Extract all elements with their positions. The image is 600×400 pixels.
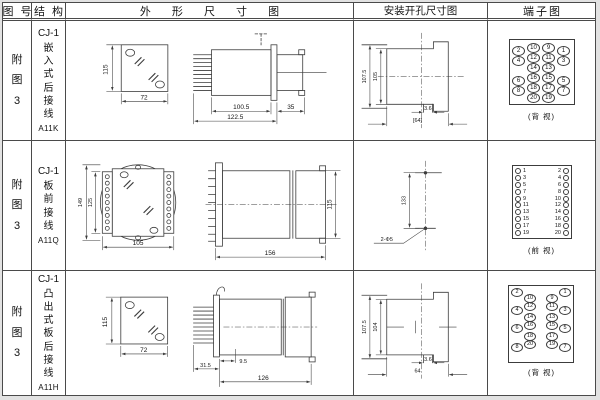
header-figure-number: 图 号	[3, 3, 32, 21]
terminal-box: 12 34 56 78 910 1112 1314 1516 1718 1920	[512, 165, 572, 239]
terminal-number: 20	[555, 230, 561, 236]
header-structure: 结 构	[32, 3, 66, 21]
mounting-drawing-cell-a11h: 107.5 104 3.6 64	[354, 271, 488, 395]
terminal-diagram-cell-a11q: 12 34 56 78 910 1112 1314 1516 1718 1920…	[488, 141, 595, 271]
dim-cutout-width: 64	[414, 369, 420, 375]
figure-number: 附图3	[11, 50, 24, 111]
terminal-circle	[515, 182, 521, 188]
terminal-oval: 2	[512, 46, 525, 56]
terminal-oval: 8	[512, 86, 525, 96]
figure-number-cell: 附图3	[3, 271, 32, 395]
terminal-oval: 5	[557, 76, 570, 86]
outline-drawing-a11h: 115 72 31.5 9.5 126	[66, 271, 353, 395]
header-terminal-diagram: 端子图	[488, 3, 595, 21]
terminal-oval: 14	[527, 63, 540, 73]
dim-cutout-inner-height: 105	[373, 72, 379, 81]
terminal-oval: 17	[542, 83, 555, 93]
terminal-circle	[563, 182, 569, 188]
terminal-oval: 10	[527, 43, 540, 53]
model-name: CJ-1	[38, 28, 59, 39]
terminal-number: 1	[523, 168, 526, 174]
terminal-oval: 18	[527, 83, 540, 93]
terminal-oval: 8	[511, 343, 523, 352]
figure-number: 附图3	[11, 175, 24, 236]
dim-hole-spec: 2-Φ5	[381, 237, 393, 243]
terminal-circle	[563, 196, 569, 202]
terminal-oval: 16	[524, 321, 536, 330]
terminal-oval: 1	[559, 288, 571, 297]
dim-notch-width: 3.6	[424, 357, 432, 363]
header-mounting-holes: 安装开孔尺寸图	[354, 3, 488, 21]
terminal-oval: 3	[559, 306, 571, 315]
terminal-oval: 16	[527, 73, 540, 83]
outline-drawing-a11k: 115 72 100.5 35 122.5	[66, 21, 353, 140]
terminal-circle	[515, 175, 521, 181]
terminal-number: 17	[523, 223, 529, 229]
terminal-number: 10	[555, 196, 561, 202]
spec-sheet: 图 号 结 构 外 形 尺 寸 图 安装开孔尺寸图 端子图 附图3 CJ-1 嵌…	[2, 2, 596, 396]
spec-table: 图 号 结 构 外 形 尺 寸 图 安装开孔尺寸图 端子图 附图3 CJ-1 嵌…	[3, 3, 595, 395]
terminal-view-label: (前 视)	[488, 245, 595, 256]
structure-description: 凸出式板后接线	[43, 288, 55, 380]
terminal-circle	[563, 202, 569, 208]
dim-front-width: 72	[140, 94, 148, 101]
terminal-oval: 13	[542, 63, 555, 73]
mounting-drawing-cell-a11k: 107.5 105 3.6 [64]	[354, 21, 488, 141]
mounting-drawing-a11q: 133 2-Φ5	[354, 141, 487, 270]
terminal-view-label: (背 视)	[488, 367, 595, 378]
terminal-oval: 12	[527, 53, 540, 63]
structure-cell: CJ-1 嵌入式后接线 A11K	[32, 21, 66, 141]
terminal-circle	[563, 230, 569, 236]
terminal-oval: 12	[524, 302, 536, 311]
terminal-number: 15	[523, 216, 529, 222]
terminal-box: 2 10 9 1 4 12 11 3 14 13 6 16 15 5 8 18 …	[509, 39, 575, 105]
mounting-drawing-a11h: 107.5 104 3.6 64	[354, 271, 487, 395]
terminal-number: 2	[558, 168, 561, 174]
dim-body-length: 100.5	[233, 104, 250, 111]
terminal-number: 3	[523, 175, 526, 181]
header-outline-dimensions: 外 形 尺 寸 图	[66, 3, 354, 21]
dim-body-length: 126	[258, 375, 269, 382]
terminal-circle	[563, 223, 569, 229]
model-name: CJ-1	[38, 166, 59, 177]
dim-rear-length: 35	[287, 104, 295, 111]
dim-front-height: 115	[102, 316, 109, 327]
terminal-row: 910	[515, 196, 569, 202]
terminal-oval: 20	[527, 93, 540, 103]
terminal-circle	[515, 209, 521, 215]
outline-drawing-a11q: 149 125 105 156 115	[66, 141, 353, 270]
terminal-circle	[515, 196, 521, 202]
terminal-circle	[563, 168, 569, 174]
terminal-row: 1718	[515, 223, 569, 229]
terminal-view-label: (背 视)	[488, 111, 595, 122]
terminal-circle	[515, 216, 521, 222]
terminal-oval: 11	[542, 53, 555, 63]
dim-cutout-width: [64]	[413, 118, 423, 124]
terminal-circle	[563, 175, 569, 181]
terminal-box: 2 4 6 8 10 12 14 16 18 20 9 11 13 15 17 …	[508, 285, 574, 363]
dim-front-height: 115	[102, 64, 109, 75]
terminal-oval: 15	[542, 73, 555, 83]
terminal-oval: 2	[511, 288, 523, 297]
terminal-number: 16	[555, 216, 561, 222]
dim-cutout-outer-height: 107.5	[362, 70, 368, 84]
terminal-number: 11	[523, 202, 529, 208]
terminal-oval: 5	[559, 324, 571, 333]
terminal-number: 13	[523, 209, 529, 215]
structure-description: 板前接线	[43, 180, 55, 233]
dim-cutout-outer-height: 107.5	[362, 320, 368, 334]
terminal-oval: 11	[546, 302, 558, 311]
dim-front-length: 31.5	[200, 363, 211, 369]
terminal-number: 18	[555, 223, 561, 229]
dim-front-height: 149	[78, 198, 84, 207]
dim-front-width: 72	[140, 347, 148, 354]
terminal-row: 1516	[515, 216, 569, 222]
terminal-diagram-cell-a11k: 2 10 9 1 4 12 11 3 14 13 6 16 15 5 8 18 …	[488, 21, 595, 141]
type-code: A11K	[38, 124, 58, 133]
terminal-number: 7	[523, 189, 526, 195]
dim-total-length: 122.5	[227, 114, 244, 121]
terminal-oval: 3	[557, 56, 570, 66]
terminal-row: 56	[515, 182, 569, 188]
terminal-oval: 19	[542, 93, 555, 103]
terminal-number: 4	[558, 175, 561, 181]
terminal-number: 6	[558, 182, 561, 188]
terminal-diagram-cell-a11h: 2 4 6 8 10 12 14 16 18 20 9 11 13 15 17 …	[488, 271, 595, 395]
terminal-circle	[563, 216, 569, 222]
terminal-number: 9	[523, 196, 526, 202]
structure-description: 嵌入式后接线	[43, 42, 55, 121]
terminal-oval: 15	[546, 321, 558, 330]
outline-drawing-cell-a11q: 149 125 105 156 115	[66, 141, 354, 271]
dim-notch-width: 3.6	[424, 106, 432, 112]
outline-drawing-cell-a11k: 115 72 100.5 35 122.5	[66, 21, 354, 141]
structure-cell: CJ-1 凸出式板后接线 A11H	[32, 271, 66, 395]
terminal-oval: 19	[546, 340, 558, 349]
terminal-oval: 4	[511, 306, 523, 315]
dim-panel-length: 9.5	[239, 359, 247, 365]
terminal-number: 8	[558, 189, 561, 195]
terminal-row: 34	[515, 175, 569, 181]
dim-hole-distance: 133	[402, 196, 408, 205]
terminal-number: 19	[523, 230, 529, 236]
terminal-row: 1112	[515, 202, 569, 208]
terminal-oval: 6	[512, 76, 525, 86]
type-code: A11H	[38, 383, 59, 392]
terminal-circle	[515, 223, 521, 229]
dim-plate-height: 125	[88, 198, 94, 207]
terminal-oval: 20	[524, 340, 536, 349]
terminal-number: 12	[555, 202, 561, 208]
dim-cutout-inner-height: 104	[373, 323, 379, 332]
mounting-drawing-cell-a11q: 133 2-Φ5	[354, 141, 488, 271]
model-name: CJ-1	[38, 274, 59, 285]
terminal-row: 78	[515, 189, 569, 195]
terminal-oval: 4	[512, 56, 525, 66]
mounting-drawing-a11k: 107.5 105 3.6 [64]	[354, 21, 487, 140]
figure-number-cell: 附图3	[3, 141, 32, 271]
dim-side-length: 156	[265, 250, 276, 257]
terminal-row: 1314	[515, 209, 569, 215]
terminal-circle	[515, 189, 521, 195]
terminal-oval: 7	[557, 86, 570, 96]
outline-drawing-cell-a11h: 115 72 31.5 9.5 126	[66, 271, 354, 395]
figure-number: 附图3	[11, 302, 24, 363]
figure-number-cell: 附图3	[3, 21, 32, 141]
terminal-number: 5	[523, 182, 526, 188]
type-code: A11Q	[38, 236, 59, 245]
terminal-circle	[563, 189, 569, 195]
terminal-oval: 9	[542, 43, 555, 53]
dim-front-width: 105	[133, 240, 144, 247]
terminal-circle	[515, 168, 521, 174]
structure-cell: CJ-1 板前接线 A11Q	[32, 141, 66, 271]
terminal-circle	[563, 209, 569, 215]
terminal-oval: 7	[559, 343, 571, 352]
terminal-circle	[515, 230, 521, 236]
dim-side-height: 115	[327, 199, 334, 210]
terminal-row: 1920	[515, 230, 569, 236]
terminal-oval: 1	[557, 46, 570, 56]
terminal-number: 14	[555, 209, 561, 215]
terminal-oval: 6	[511, 324, 523, 333]
terminal-circle	[515, 202, 521, 208]
terminal-row: 12	[515, 168, 569, 174]
